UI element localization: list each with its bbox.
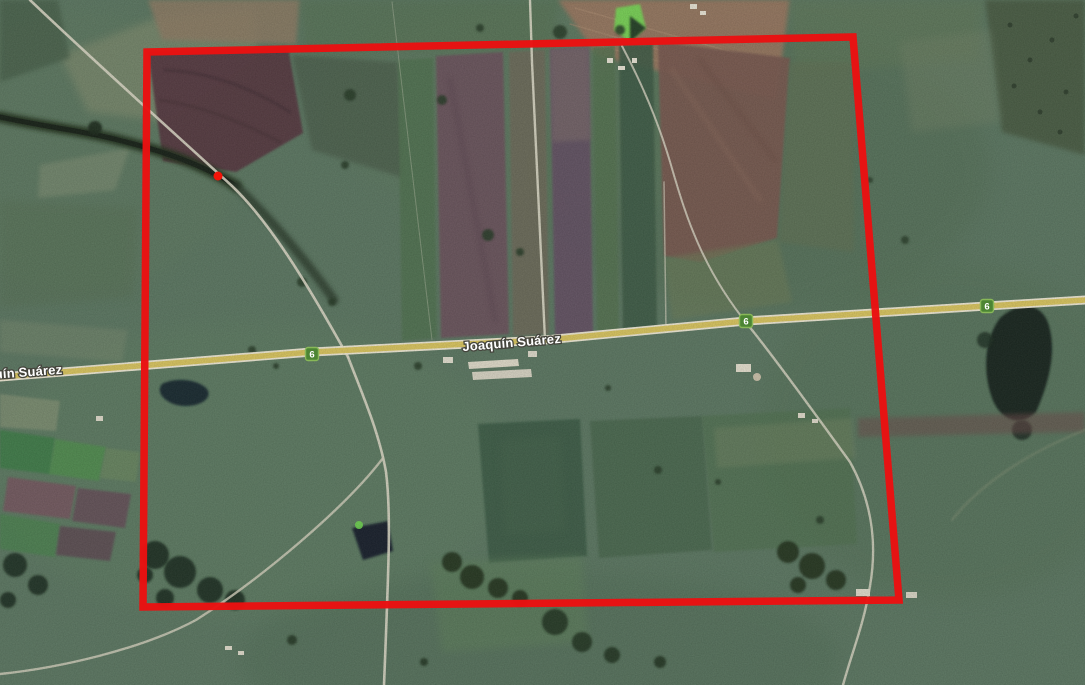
tree bbox=[341, 161, 349, 169]
route-6-badge: 6 bbox=[306, 348, 319, 361]
bush bbox=[1050, 38, 1055, 43]
building bbox=[225, 646, 232, 650]
building bbox=[238, 651, 244, 655]
silo bbox=[753, 373, 761, 381]
bush bbox=[1074, 14, 1079, 19]
tree bbox=[605, 385, 611, 391]
tree bbox=[977, 332, 993, 348]
tree bbox=[482, 229, 494, 241]
tree bbox=[553, 25, 567, 39]
building bbox=[607, 58, 613, 63]
tree bbox=[28, 575, 48, 595]
tree bbox=[164, 556, 196, 588]
tree bbox=[414, 362, 422, 370]
building bbox=[906, 592, 917, 598]
terrain-feature bbox=[500, 436, 565, 535]
algae-pond bbox=[355, 521, 363, 529]
tree bbox=[273, 363, 279, 369]
plowed-field bbox=[148, 0, 300, 44]
building bbox=[700, 11, 706, 15]
route-6-badge: 6 bbox=[981, 300, 994, 313]
tree bbox=[604, 647, 620, 663]
tree bbox=[790, 577, 806, 593]
tree bbox=[88, 121, 102, 135]
building bbox=[856, 589, 870, 596]
tree bbox=[799, 553, 825, 579]
tree bbox=[476, 24, 484, 32]
tree bbox=[816, 516, 824, 524]
tree bbox=[287, 635, 297, 645]
route-badge-number: 6 bbox=[984, 302, 989, 313]
route-6-badge: 6 bbox=[740, 315, 753, 328]
tree bbox=[516, 248, 524, 256]
tree bbox=[460, 565, 484, 589]
tree bbox=[777, 541, 799, 563]
building bbox=[632, 58, 637, 63]
tree bbox=[437, 95, 447, 105]
tree bbox=[826, 570, 846, 590]
bush bbox=[1028, 58, 1033, 63]
red-dot-marker bbox=[214, 172, 223, 181]
building bbox=[443, 357, 453, 363]
tree bbox=[542, 609, 568, 635]
terrain-feature bbox=[550, 47, 591, 142]
building bbox=[690, 4, 697, 9]
tree bbox=[488, 578, 508, 598]
tree bbox=[715, 479, 721, 485]
crop-field bbox=[56, 526, 116, 561]
bush bbox=[1058, 130, 1063, 135]
field-strip bbox=[619, 44, 657, 334]
field-strip bbox=[593, 46, 619, 336]
bush bbox=[1008, 23, 1013, 28]
tree bbox=[572, 632, 592, 652]
route-badge-number: 6 bbox=[743, 317, 748, 328]
tree bbox=[0, 592, 16, 608]
tree bbox=[654, 656, 666, 668]
building bbox=[812, 419, 818, 423]
terrain-feature bbox=[779, 62, 854, 252]
tree bbox=[344, 89, 356, 101]
satellite-map-view[interactable]: Joaquín SuárezJoaquín Suárez666 bbox=[0, 0, 1085, 685]
terrain-feature bbox=[100, 448, 140, 482]
terrain-feature bbox=[900, 30, 1000, 132]
pasture bbox=[590, 416, 712, 558]
tree bbox=[901, 236, 909, 244]
building bbox=[618, 66, 625, 70]
bush bbox=[1038, 110, 1043, 115]
building bbox=[736, 364, 751, 372]
route-badge-number: 6 bbox=[309, 350, 314, 361]
tree bbox=[615, 25, 625, 35]
crop-field bbox=[72, 488, 131, 528]
map-canvas: Joaquín SuárezJoaquín Suárez666 bbox=[0, 0, 1085, 685]
tree bbox=[442, 552, 462, 572]
building bbox=[528, 351, 537, 357]
tree bbox=[197, 577, 223, 603]
bush bbox=[1012, 84, 1017, 89]
terrain-feature bbox=[0, 200, 138, 308]
tree bbox=[328, 298, 336, 306]
bush bbox=[1064, 90, 1069, 95]
building bbox=[798, 413, 805, 418]
tree bbox=[654, 466, 662, 474]
tree bbox=[3, 553, 27, 577]
tree bbox=[420, 658, 428, 666]
building bbox=[96, 416, 103, 421]
